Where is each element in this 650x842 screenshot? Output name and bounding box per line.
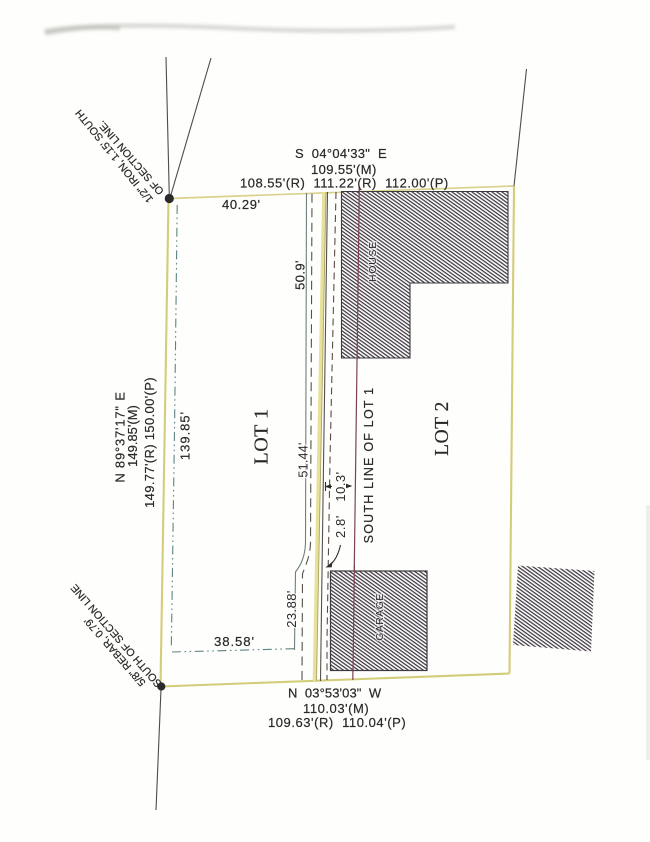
svg-text:109.63'(R) 110.04'(P): 109.63'(R) 110.04'(P) [268, 715, 406, 730]
svg-text:149.77'(R) 150.00'(P): 149.77'(R) 150.00'(P) [142, 377, 157, 508]
svg-text:149.85'(M): 149.85'(M) [125, 405, 140, 467]
svg-text:2.8': 2.8' [333, 515, 348, 538]
svg-text:108.55'(R) 111.22'(R) 112.00: 108.55'(R) 111.22'(R) 112.00'(P) [240, 176, 449, 191]
svg-text:LOT 2: LOT 2 [432, 401, 453, 456]
svg-text:SOUTH LINE OF LOT 1: SOUTH LINE OF LOT 1 [362, 387, 376, 544]
svg-text:51.44': 51.44' [297, 442, 311, 477]
svg-text:HOUSE: HOUSE [368, 241, 379, 282]
svg-text:139.85': 139.85' [178, 411, 193, 460]
svg-text:SOUTH OF SECTION LINE: SOUTH OF SECTION LINE [69, 582, 165, 690]
svg-text:38.58': 38.58' [214, 634, 255, 649]
svg-text:1/2" IRON, 1.15' SOUTH: 1/2" IRON, 1.15' SOUTH [73, 107, 156, 205]
svg-text:GARAGE: GARAGE [375, 593, 386, 640]
svg-text:LOT 1: LOT 1 [251, 408, 273, 464]
svg-text:40.29': 40.29' [222, 197, 261, 212]
svg-text:N 03°53'03" W: N 03°53'03" W [288, 686, 382, 701]
svg-text:10.3': 10.3' [333, 471, 348, 501]
svg-text:50.9': 50.9' [292, 260, 307, 290]
svg-text:110.03'(M): 110.03'(M) [303, 701, 369, 716]
svg-text:23.88': 23.88' [284, 590, 299, 627]
svg-text:S 04°04'33" E: S 04°04'33" E [295, 146, 387, 161]
